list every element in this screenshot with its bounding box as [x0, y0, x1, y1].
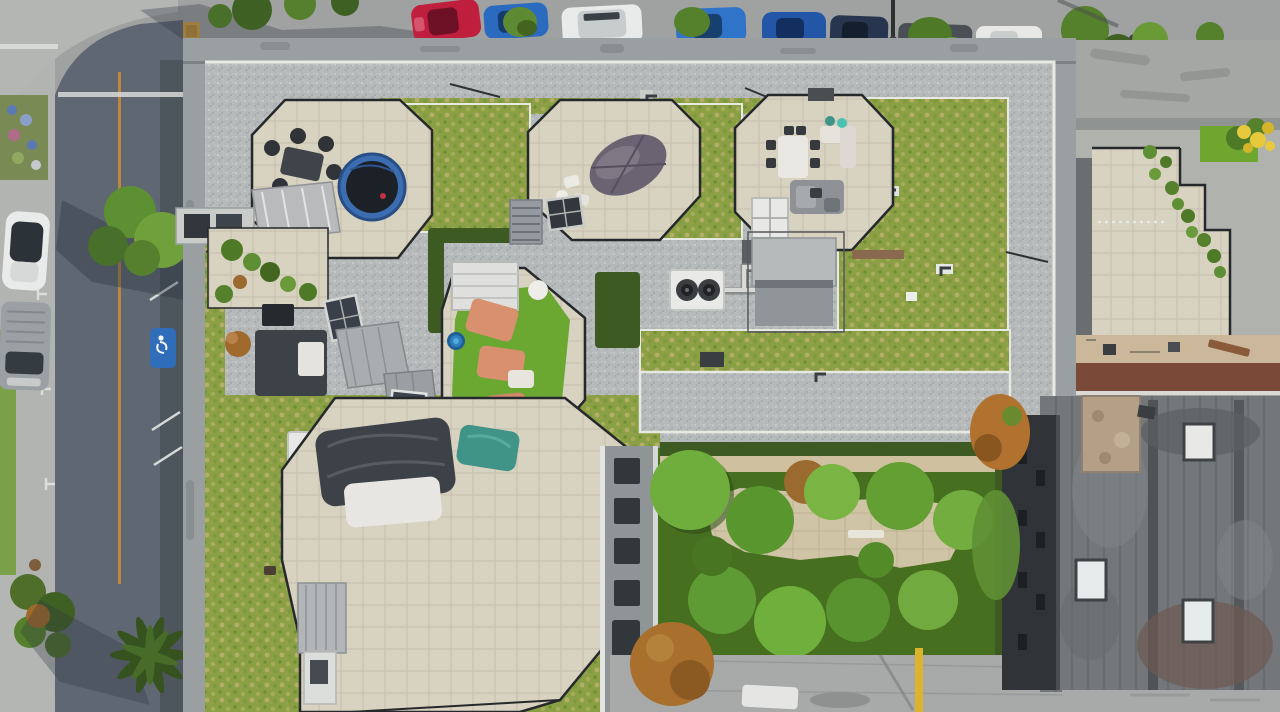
street-shrub — [674, 7, 710, 37]
handicap-stall — [150, 328, 176, 368]
southeast-building — [970, 394, 1280, 712]
kiddie-pool — [447, 332, 465, 350]
wood-plank — [852, 250, 904, 259]
east-foliage — [972, 490, 1020, 600]
gravel-walkway — [640, 372, 1010, 432]
road-building-shadow — [160, 60, 183, 712]
white-hatchback — [1, 211, 50, 292]
hvac-twin-fan — [670, 270, 724, 310]
trampoline — [339, 154, 405, 220]
roof-box — [700, 352, 724, 367]
east-alley — [1076, 335, 1280, 395]
manhole — [29, 559, 41, 571]
small-object — [264, 566, 276, 575]
planter-terrace — [208, 228, 328, 308]
white-pad — [508, 370, 534, 388]
white-vehicle-roof — [741, 685, 798, 710]
skylight-glass — [546, 196, 584, 230]
courtyard-north-hedge — [660, 442, 1006, 456]
aerial-photo — [0, 0, 1280, 712]
teal-ball — [837, 118, 847, 128]
street-shrub — [517, 20, 537, 36]
planter-box — [808, 88, 834, 101]
sofa-cushions — [298, 342, 324, 376]
yellow-bollard — [915, 648, 923, 712]
teal-ball — [825, 116, 835, 126]
gray-van — [0, 301, 51, 391]
patio-north-middle — [510, 100, 700, 244]
aerial-photo-canvas — [0, 0, 1280, 712]
slat-module — [510, 200, 542, 244]
ground-stain — [810, 692, 870, 708]
tan-roof-patch — [1082, 396, 1140, 472]
tv-unit — [262, 304, 294, 326]
northeast-building — [1076, 40, 1280, 335]
white-covered-item — [343, 476, 442, 528]
